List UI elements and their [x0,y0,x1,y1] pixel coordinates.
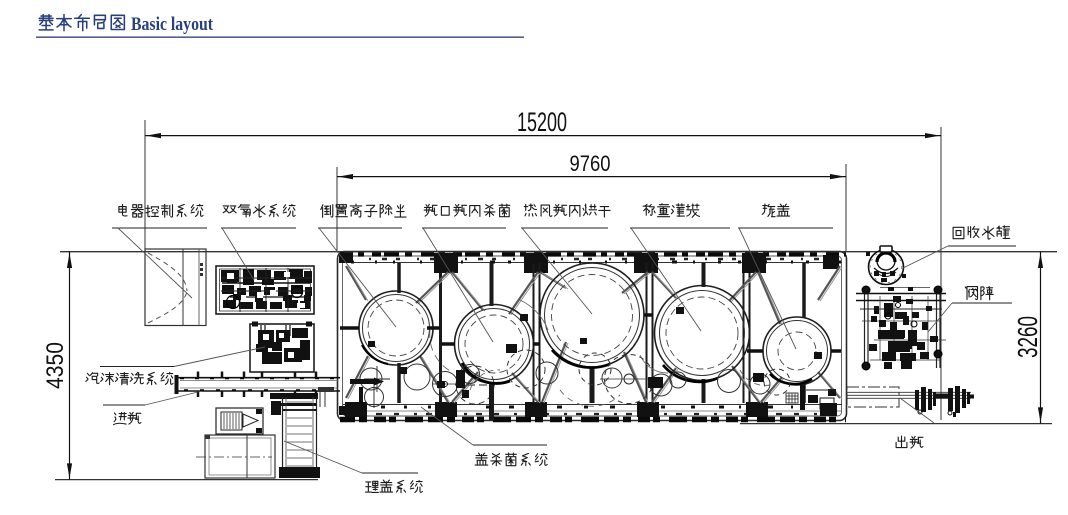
svg-text:9760: 9760 [570,151,611,176]
svg-text:Basic layout: Basic layout [131,14,214,35]
svg-text:15200: 15200 [517,107,567,137]
svg-text:3260: 3260 [1012,316,1043,358]
svg-text:4350: 4350 [42,342,69,389]
